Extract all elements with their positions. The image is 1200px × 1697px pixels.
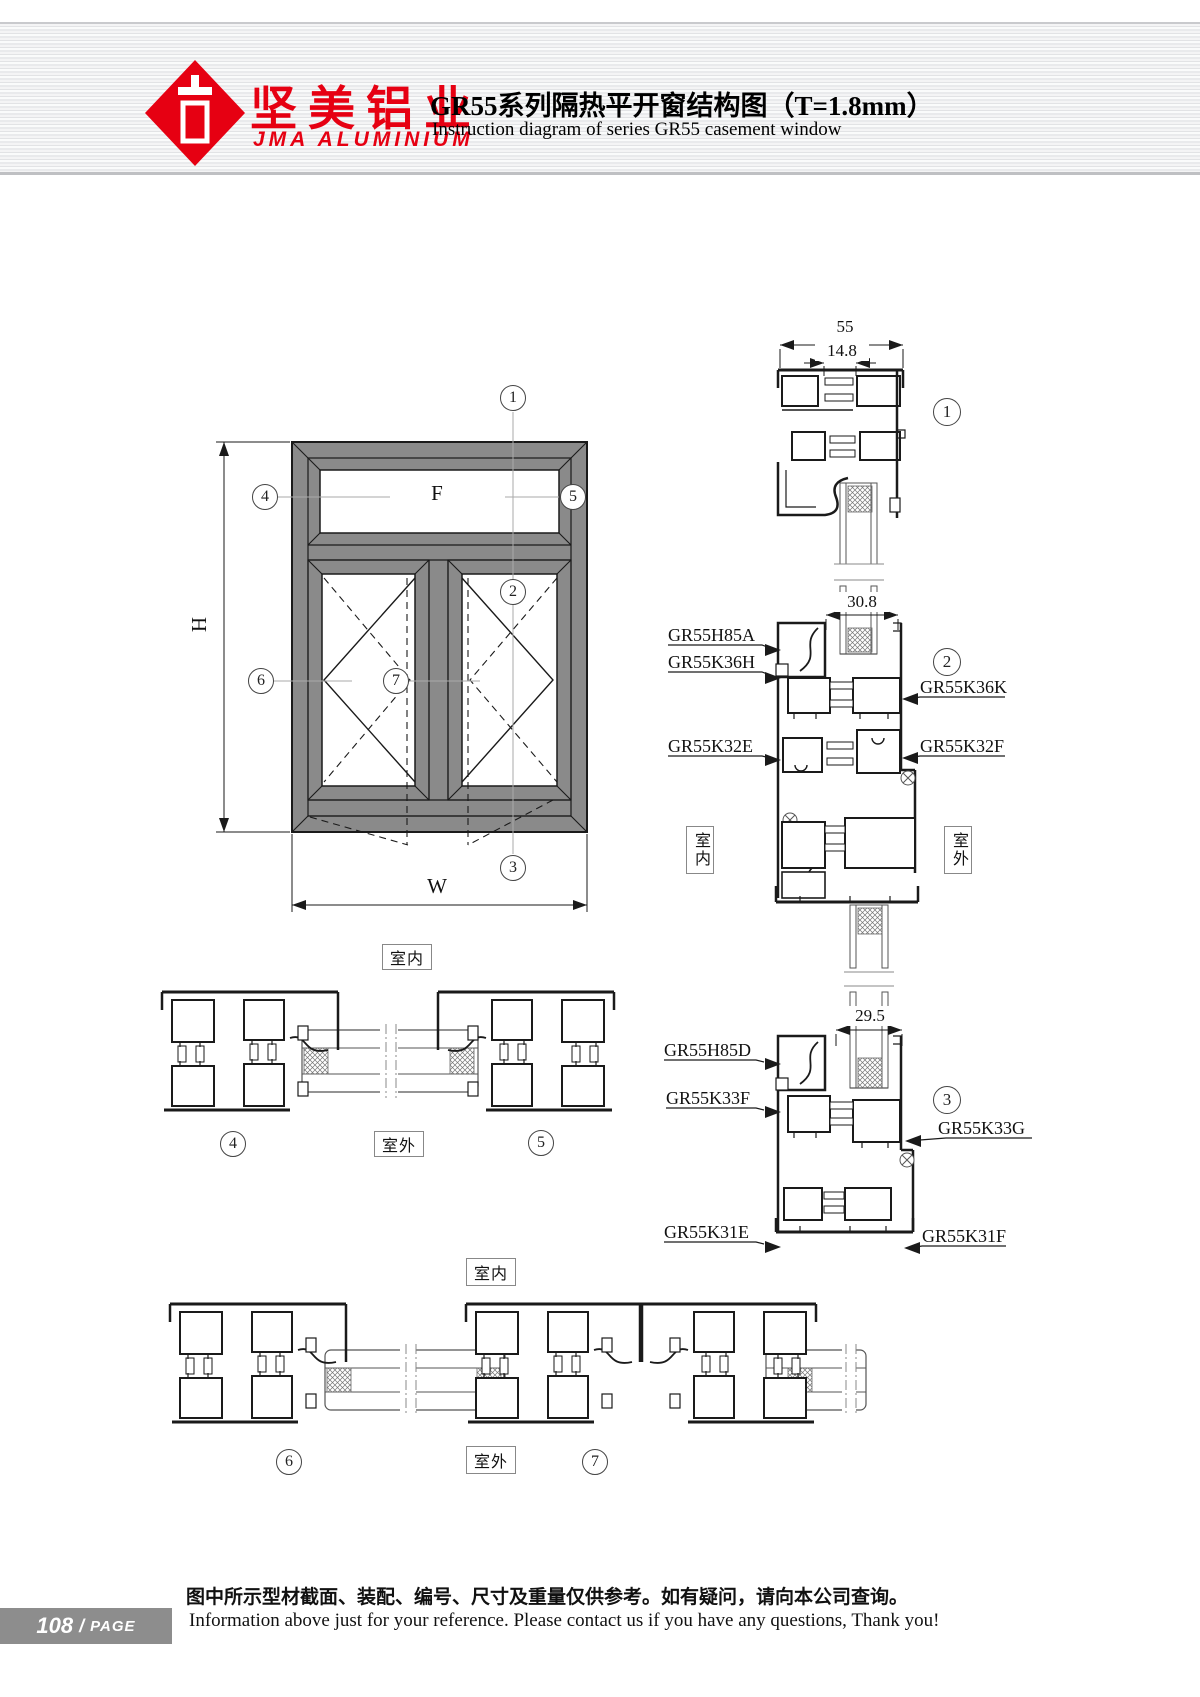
callout-1: 1 (500, 385, 526, 411)
callout-6: 6 (248, 668, 274, 694)
height-dim-label: H (187, 617, 212, 632)
footer-note-en: Information above just for your referenc… (189, 1610, 939, 1632)
callout-4: 4 (252, 484, 278, 510)
page-number-word: PAGE (90, 1618, 135, 1635)
dim-14-8: 14.8 (815, 341, 869, 361)
profile-label-gr55k36h: GR55K36H (668, 652, 755, 673)
section-6-callout: 6 (276, 1449, 302, 1475)
page-number: 108 (36, 1613, 73, 1639)
section-4-callout: 4 (220, 1131, 246, 1157)
profile-label-gr55k31f: GR55K31F (922, 1226, 1006, 1247)
section-7-callout: 7 (582, 1449, 608, 1475)
zone-indoor-section67: 室内 (466, 1258, 516, 1286)
section-3-callout: 3 (933, 1086, 961, 1114)
technical-drawing-canvas (0, 0, 1200, 1697)
footer-note-cn: 图中所示型材截面、装配、编号、尺寸及重量仅供参考。如有疑问，请向本公司查询。 (186, 1582, 908, 1609)
zone-outdoor-section67: 室外 (466, 1446, 516, 1474)
callout-2: 2 (500, 579, 526, 605)
vertical-sections (664, 340, 1032, 1254)
profile-label-gr55h85a: GR55H85A (668, 625, 755, 646)
catalog-page: 坚美铝业 JMA ALUMINIUM GR55系列隔热平开窗结构图（T=1.8m… (0, 0, 1200, 1697)
callout-5: 5 (560, 484, 586, 510)
width-dim-label: W (420, 874, 454, 899)
zone-indoor-section45: 室内 (382, 944, 432, 970)
section-1-callout: 1 (933, 398, 961, 426)
section-2-callout: 2 (933, 648, 961, 676)
dim-29-5: 29.5 (843, 1006, 897, 1026)
page-subtitle: Instruction diagram of series GR55 casem… (432, 119, 841, 141)
page-number-box: 108 / PAGE (0, 1608, 172, 1644)
zone-outdoor-section45: 室外 (374, 1131, 424, 1157)
dim-30-8: 30.8 (835, 592, 889, 612)
zone-indoor-section2: 室内 (686, 826, 714, 874)
callout-7: 7 (383, 668, 409, 694)
profile-label-gr55k33f: GR55K33F (666, 1088, 750, 1109)
page-title: GR55系列隔热平开窗结构图（T=1.8mm） (430, 84, 934, 123)
horizontal-section-67 (170, 1304, 866, 1422)
dim-55: 55 (823, 317, 867, 337)
profile-label-gr55k33g: GR55K33G (938, 1118, 1025, 1139)
profile-label-gr55k36k: GR55K36K (920, 677, 1007, 698)
profile-label-gr55k31e: GR55K31E (664, 1222, 749, 1243)
section-5-callout: 5 (528, 1130, 554, 1156)
profile-label-gr55h85d: GR55H85D (664, 1040, 751, 1061)
horizontal-section-45 (162, 992, 614, 1110)
callout-3: 3 (500, 855, 526, 881)
zone-outdoor-section2: 室外 (944, 826, 972, 874)
fixed-panel-label: F (425, 481, 449, 506)
profile-label-gr55k32f: GR55K32F (920, 736, 1004, 757)
profile-label-gr55k32e: GR55K32E (668, 736, 753, 757)
page-number-slash: / (79, 1616, 84, 1637)
